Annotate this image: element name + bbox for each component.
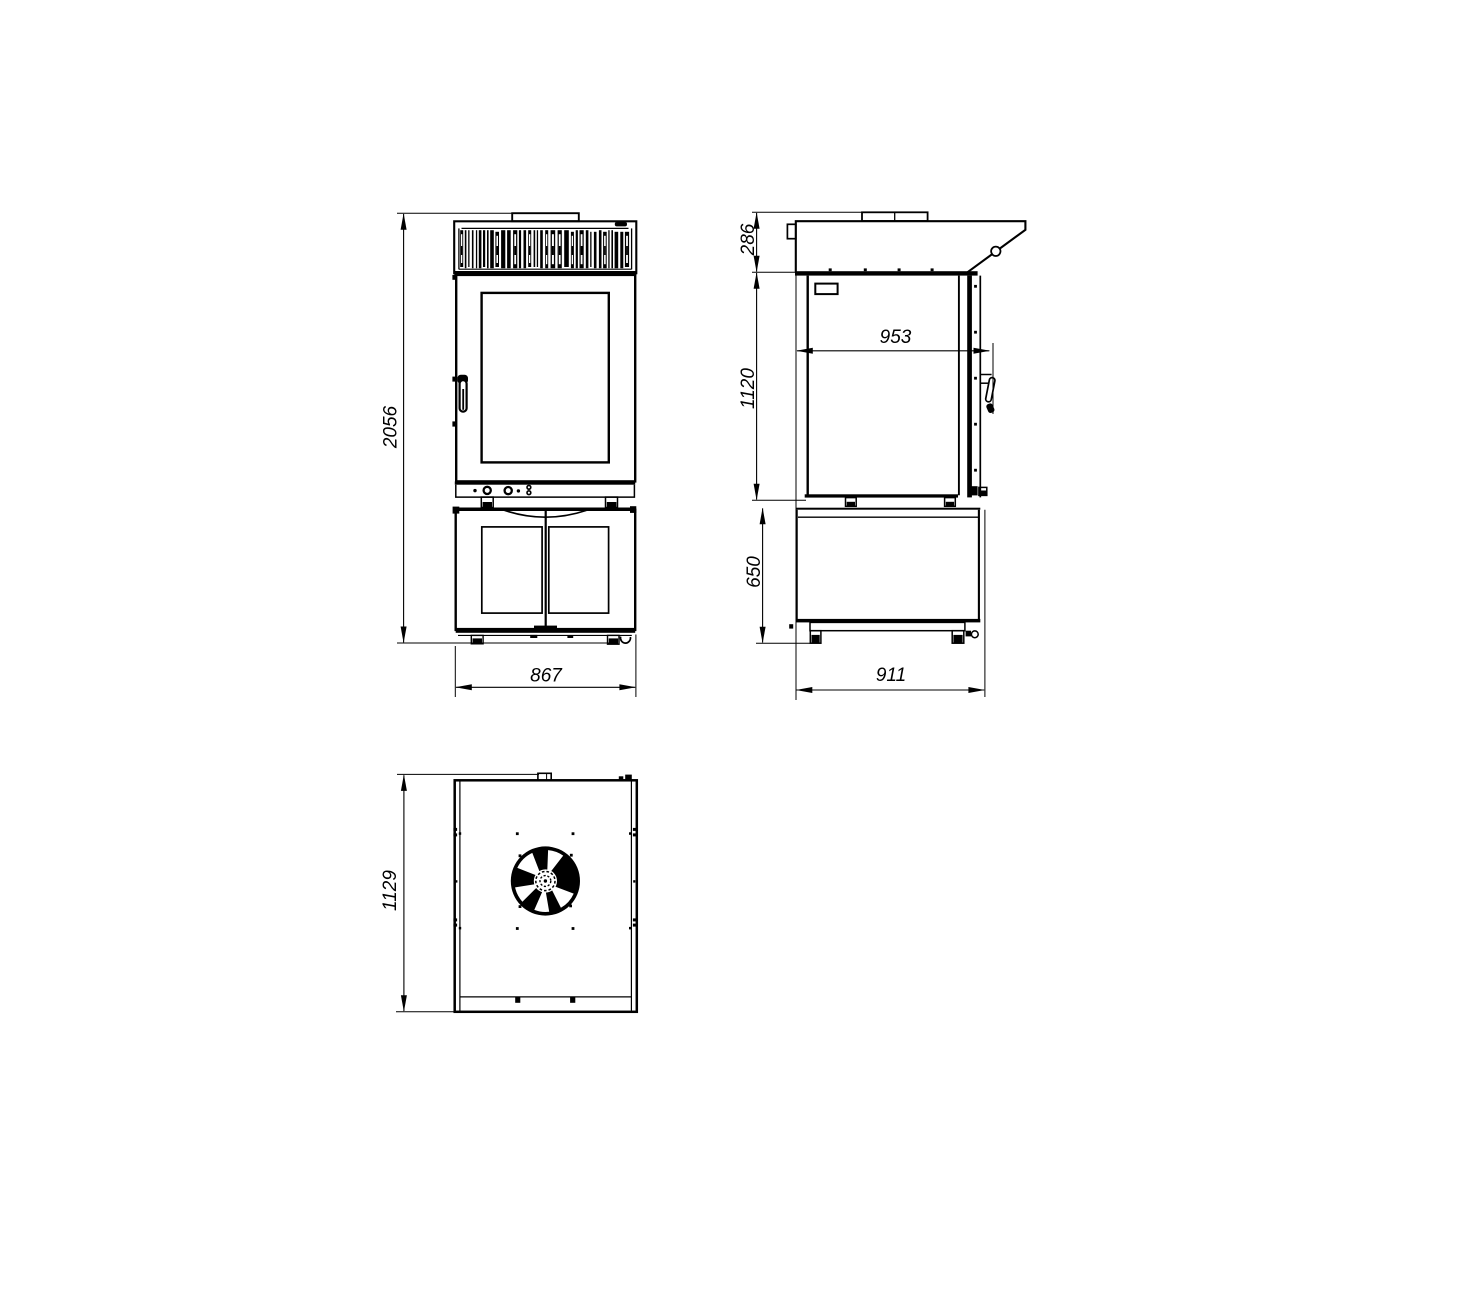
svg-text:867: 867 xyxy=(530,666,563,687)
svg-text:650: 650 xyxy=(744,556,765,588)
svg-text:911: 911 xyxy=(876,665,906,686)
svg-text:286: 286 xyxy=(738,223,759,256)
svg-text:953: 953 xyxy=(880,327,912,348)
svg-text:1129: 1129 xyxy=(380,870,401,911)
svg-text:2056: 2056 xyxy=(381,405,402,449)
svg-text:1120: 1120 xyxy=(738,368,759,409)
